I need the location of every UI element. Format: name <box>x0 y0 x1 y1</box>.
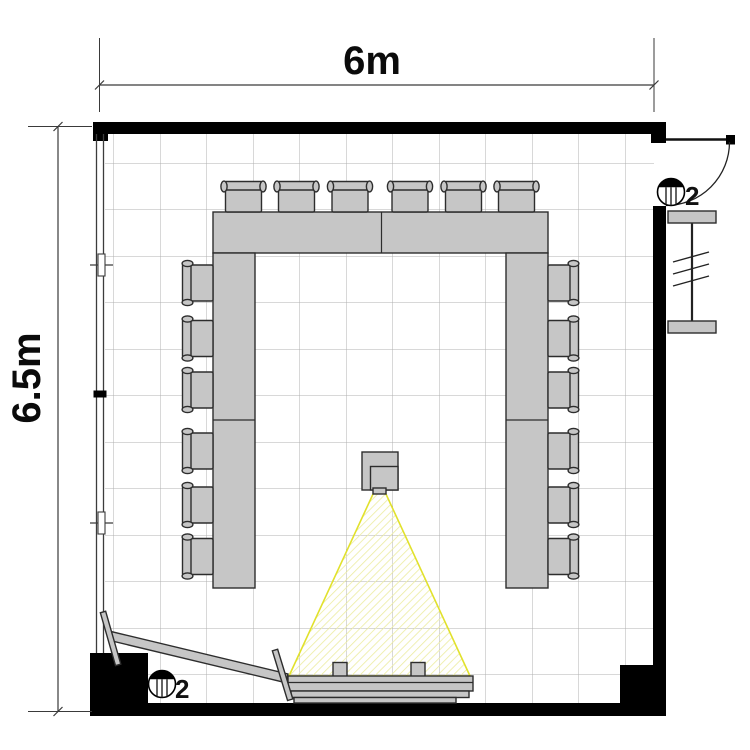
right-wall <box>653 206 666 716</box>
table-top-bar <box>213 212 548 253</box>
bottom-right-corner <box>620 665 666 713</box>
window-mullion-box <box>98 512 105 534</box>
radiator <box>668 211 716 333</box>
width-label: 6m <box>343 39 401 83</box>
projector-inner <box>371 467 399 491</box>
chair <box>182 316 213 361</box>
chair <box>387 181 432 212</box>
chair <box>182 260 213 305</box>
chair <box>182 534 213 579</box>
chair <box>548 260 579 305</box>
chair <box>221 181 266 212</box>
door-jamb <box>726 135 735 145</box>
projector <box>362 452 398 494</box>
screen-foot <box>333 663 347 677</box>
projector-lens <box>373 488 386 494</box>
ceiling-outlet-icon <box>149 671 176 698</box>
window-mullion-mid <box>94 391 107 398</box>
chair <box>548 428 579 473</box>
width-dimension: 6m <box>95 38 659 112</box>
chair <box>441 181 486 212</box>
height-dimension: 6.5m <box>5 122 92 716</box>
chair <box>182 482 213 527</box>
chair <box>548 316 579 361</box>
outlet-count-label: 2 <box>685 181 699 211</box>
chair <box>548 482 579 527</box>
top-wall <box>93 122 663 134</box>
radiator-bottom-bracket <box>668 321 716 333</box>
chair <box>182 428 213 473</box>
chair <box>327 181 372 212</box>
chair <box>182 367 213 412</box>
floor-plan: 2 2 6m 6.5m <box>0 0 750 750</box>
height-label: 6.5m <box>5 332 49 423</box>
top-left-corner <box>93 122 108 141</box>
chair <box>494 181 539 212</box>
floor-plan-canvas: 2 2 6m 6.5m <box>0 0 750 750</box>
chair <box>274 181 319 212</box>
screen-bar <box>288 676 473 691</box>
screen-bar-2 <box>291 691 469 698</box>
ceiling-outlet-icon <box>658 179 685 206</box>
bottom-wall <box>90 703 666 716</box>
screen-bar-3 <box>294 698 456 704</box>
radiator-top-bracket <box>668 211 716 223</box>
chair <box>548 534 579 579</box>
top-right-step <box>651 122 666 143</box>
screen-foot <box>411 663 425 677</box>
outlet-count-label: 2 <box>175 674 189 704</box>
chair <box>548 367 579 412</box>
window-mullion-box <box>98 254 105 276</box>
